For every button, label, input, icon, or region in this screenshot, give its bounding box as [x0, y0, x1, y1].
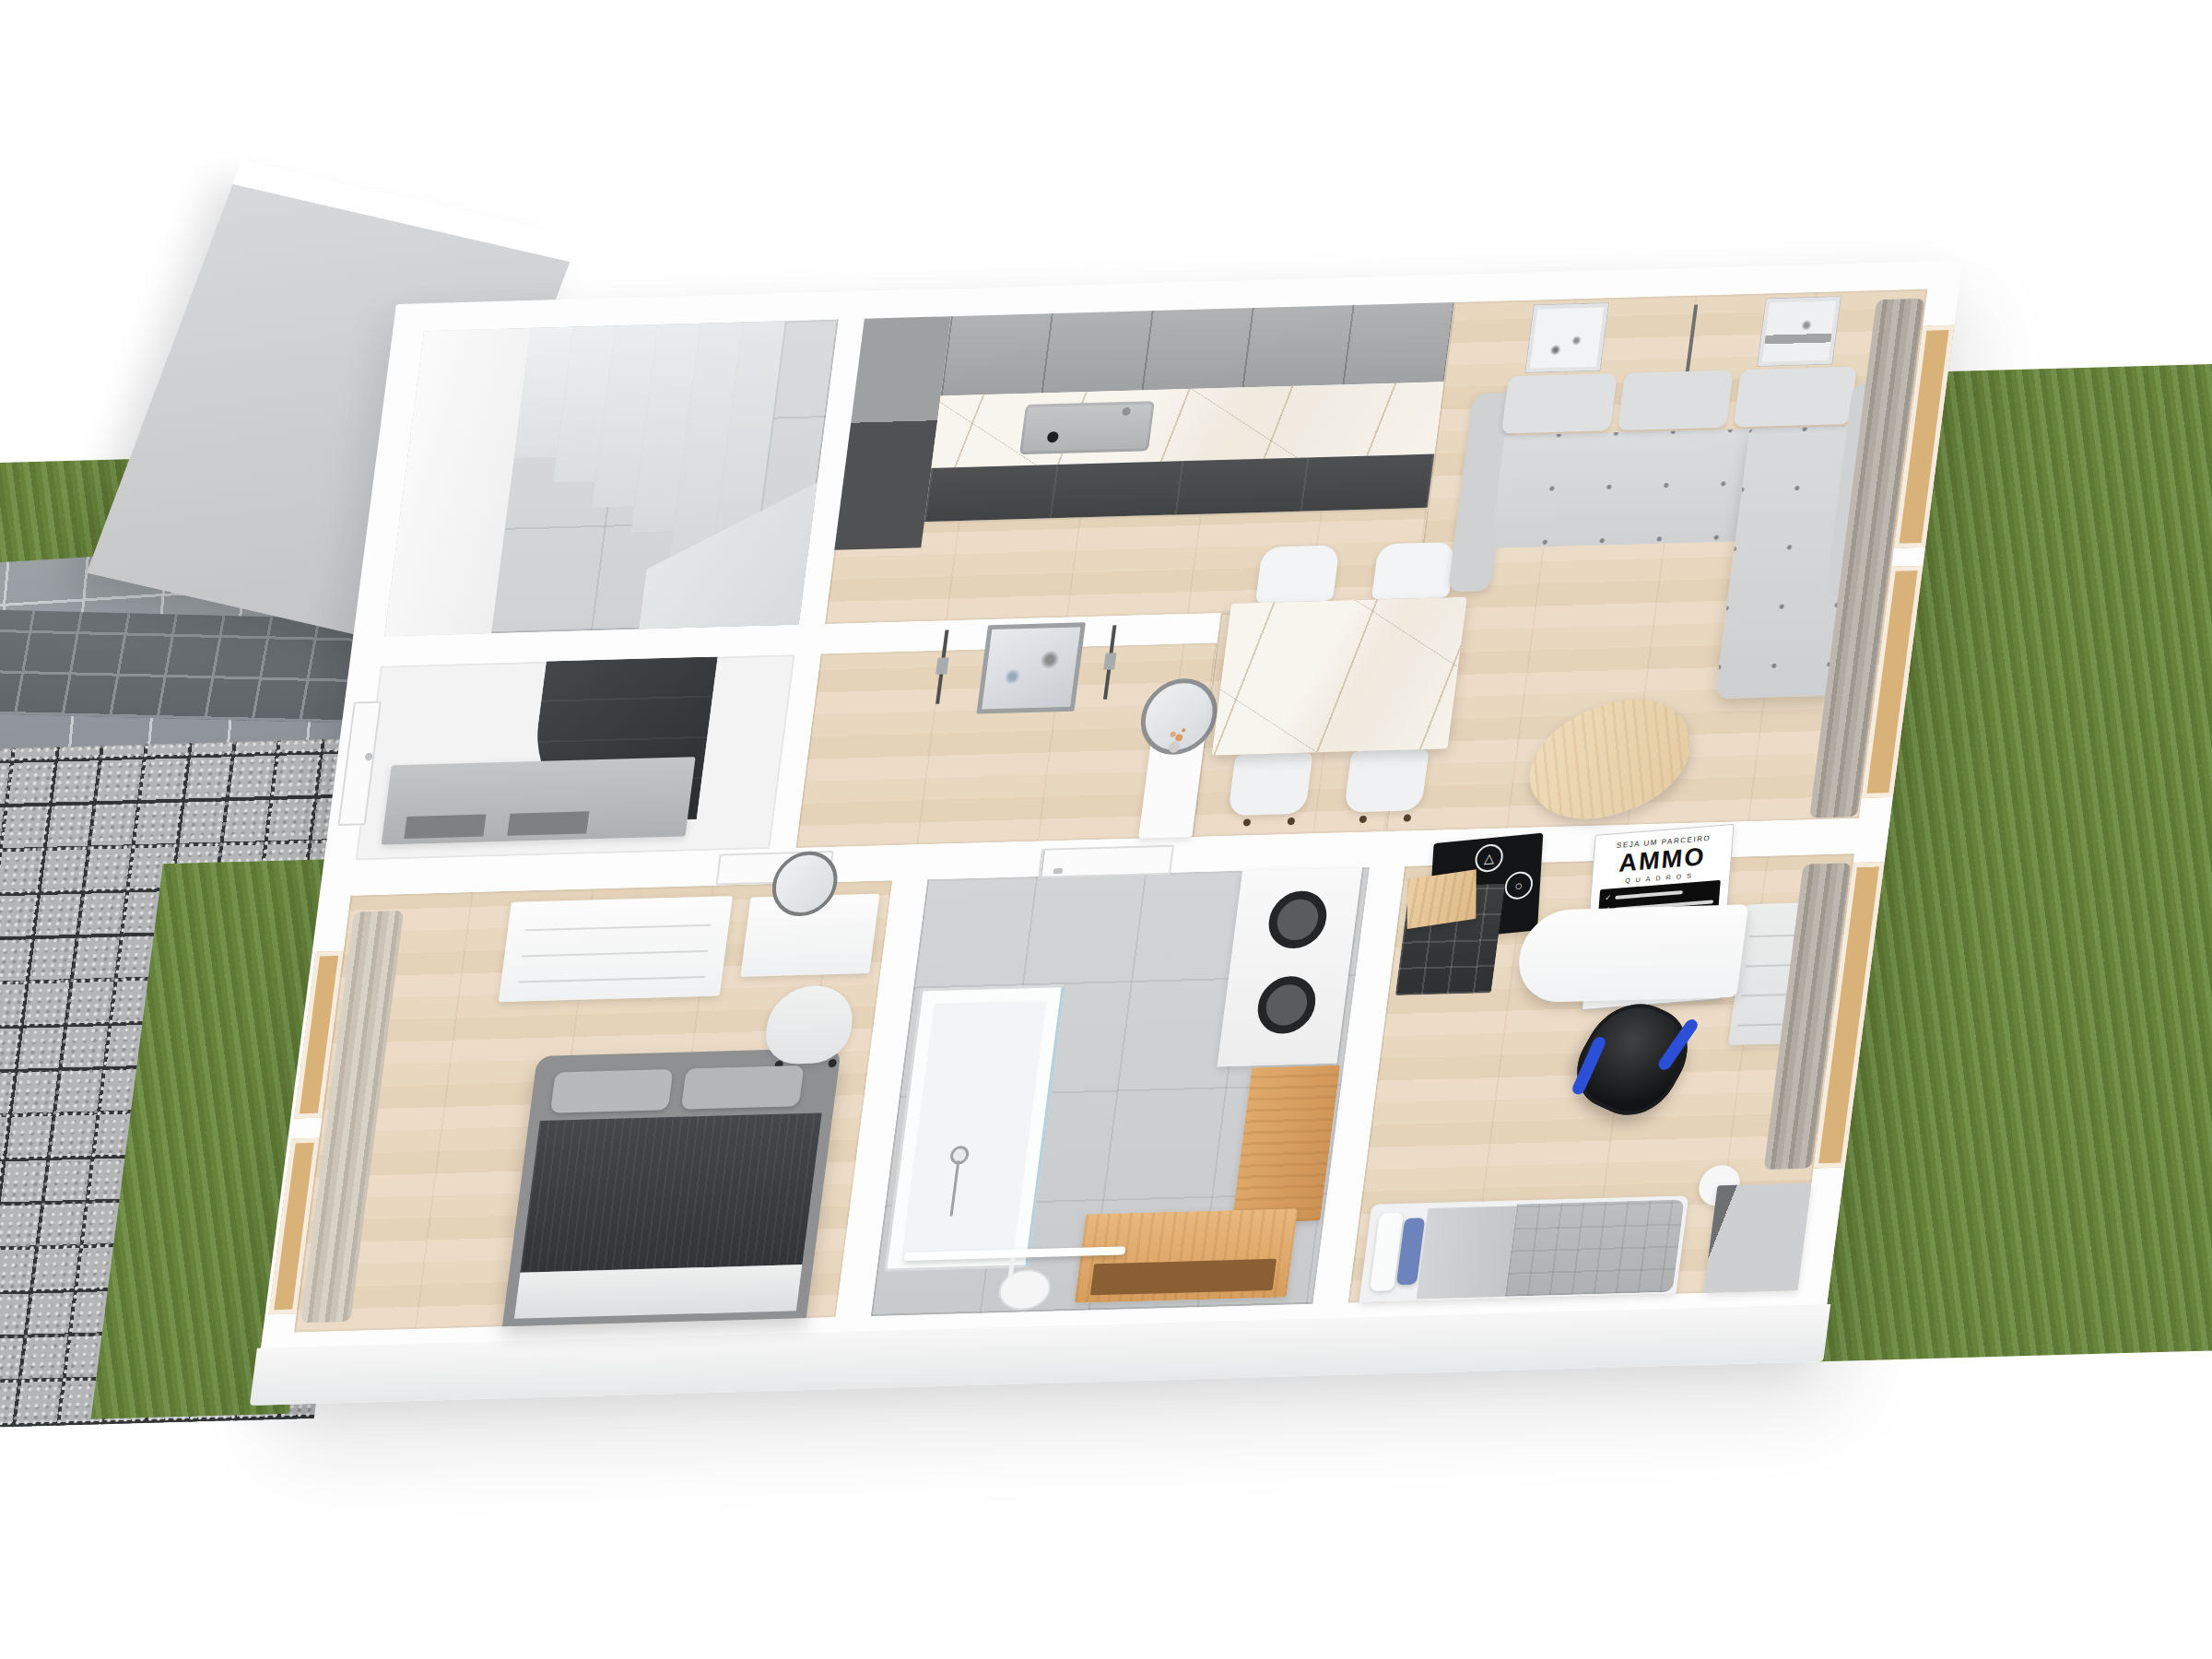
floorplan-render-stage: △ □ ○ ✕ SEJA UM PARCEIRO AMMO QUADROS ✓ … [0, 0, 2212, 1659]
living-wall-frame-bridge [1758, 297, 1840, 366]
hallway-sconce-left-base [935, 657, 948, 674]
dining-chair-bottom-left [1228, 752, 1313, 816]
sofa-back-cushion-2 [1618, 371, 1734, 431]
living-wall-frame-palms [1525, 303, 1607, 372]
drawer-line [525, 924, 712, 932]
bathroom-vanity-open-shelf [1090, 1259, 1277, 1296]
dining-chair-top-left [1255, 546, 1340, 604]
gamepad-glyph-circle-icon: ○ [1504, 870, 1534, 900]
office-bed-quilt [1505, 1199, 1685, 1296]
gamepad-glyph-triangle-icon: △ [1475, 843, 1504, 874]
master-bed-blanket [520, 1112, 821, 1272]
drawer-line [522, 950, 708, 958]
kitchen-sink [1019, 401, 1155, 454]
master-bed-pillow-left [550, 1069, 674, 1113]
bedroom-dresser [499, 896, 733, 1002]
office-wardrobe [1703, 1182, 1811, 1292]
sofa-back-cushion-3 [1734, 367, 1857, 428]
master-bed-pillow-right [681, 1065, 805, 1110]
scene-3d: △ □ ○ ✕ SEJA UM PARCEIRO AMMO QUADROS ✓ … [253, 261, 1963, 1406]
drawer-line [519, 976, 705, 983]
dining-table [1212, 597, 1467, 756]
dining-chair-bottom-right [1344, 749, 1430, 813]
entry-sideboard-cubby-2 [507, 811, 589, 835]
check-icon: ✓ [1605, 894, 1611, 902]
hallway-sconce-right-base [1103, 653, 1116, 669]
entry-sideboard-cubby-1 [404, 814, 486, 838]
kitchen-upper-cabinets [941, 302, 1454, 396]
checklist-text-bar [1615, 890, 1683, 900]
office-shelf-wood-top [1407, 869, 1477, 929]
hallway-art-frame [976, 622, 1085, 713]
office-desk [1513, 904, 1748, 1003]
dining-chair-top-right [1371, 542, 1456, 600]
office-bed-sheet [1417, 1206, 1517, 1299]
master-bed-sheet-fold [514, 1265, 802, 1319]
bathroom-door-handle [1053, 868, 1063, 874]
sofa-back-cushion-1 [1501, 373, 1618, 434]
